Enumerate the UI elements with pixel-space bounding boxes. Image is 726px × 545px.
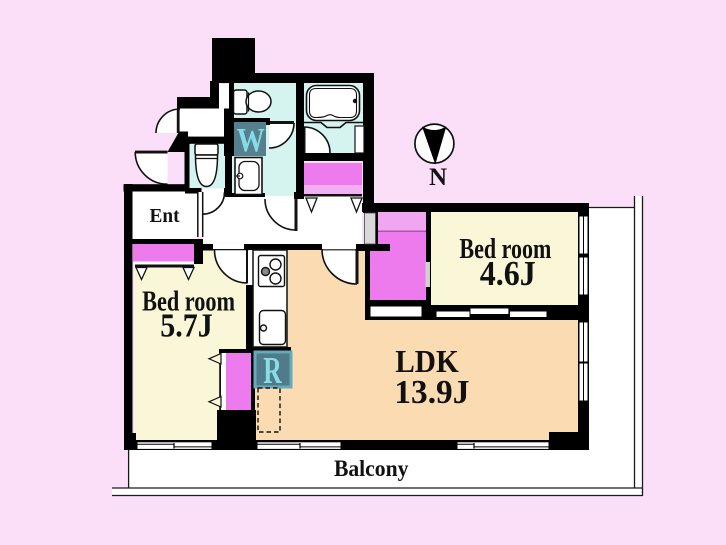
- svg-text:Ent: Ent: [150, 205, 180, 227]
- svg-text:13.9J: 13.9J: [394, 374, 469, 411]
- svg-text:4.6J: 4.6J: [480, 254, 536, 293]
- svg-text:5.7J: 5.7J: [160, 308, 213, 345]
- svg-text:N: N: [429, 164, 447, 191]
- svg-text:R: R: [263, 350, 282, 392]
- svg-text:W: W: [237, 122, 265, 159]
- svg-text:Balcony: Balcony: [334, 456, 409, 481]
